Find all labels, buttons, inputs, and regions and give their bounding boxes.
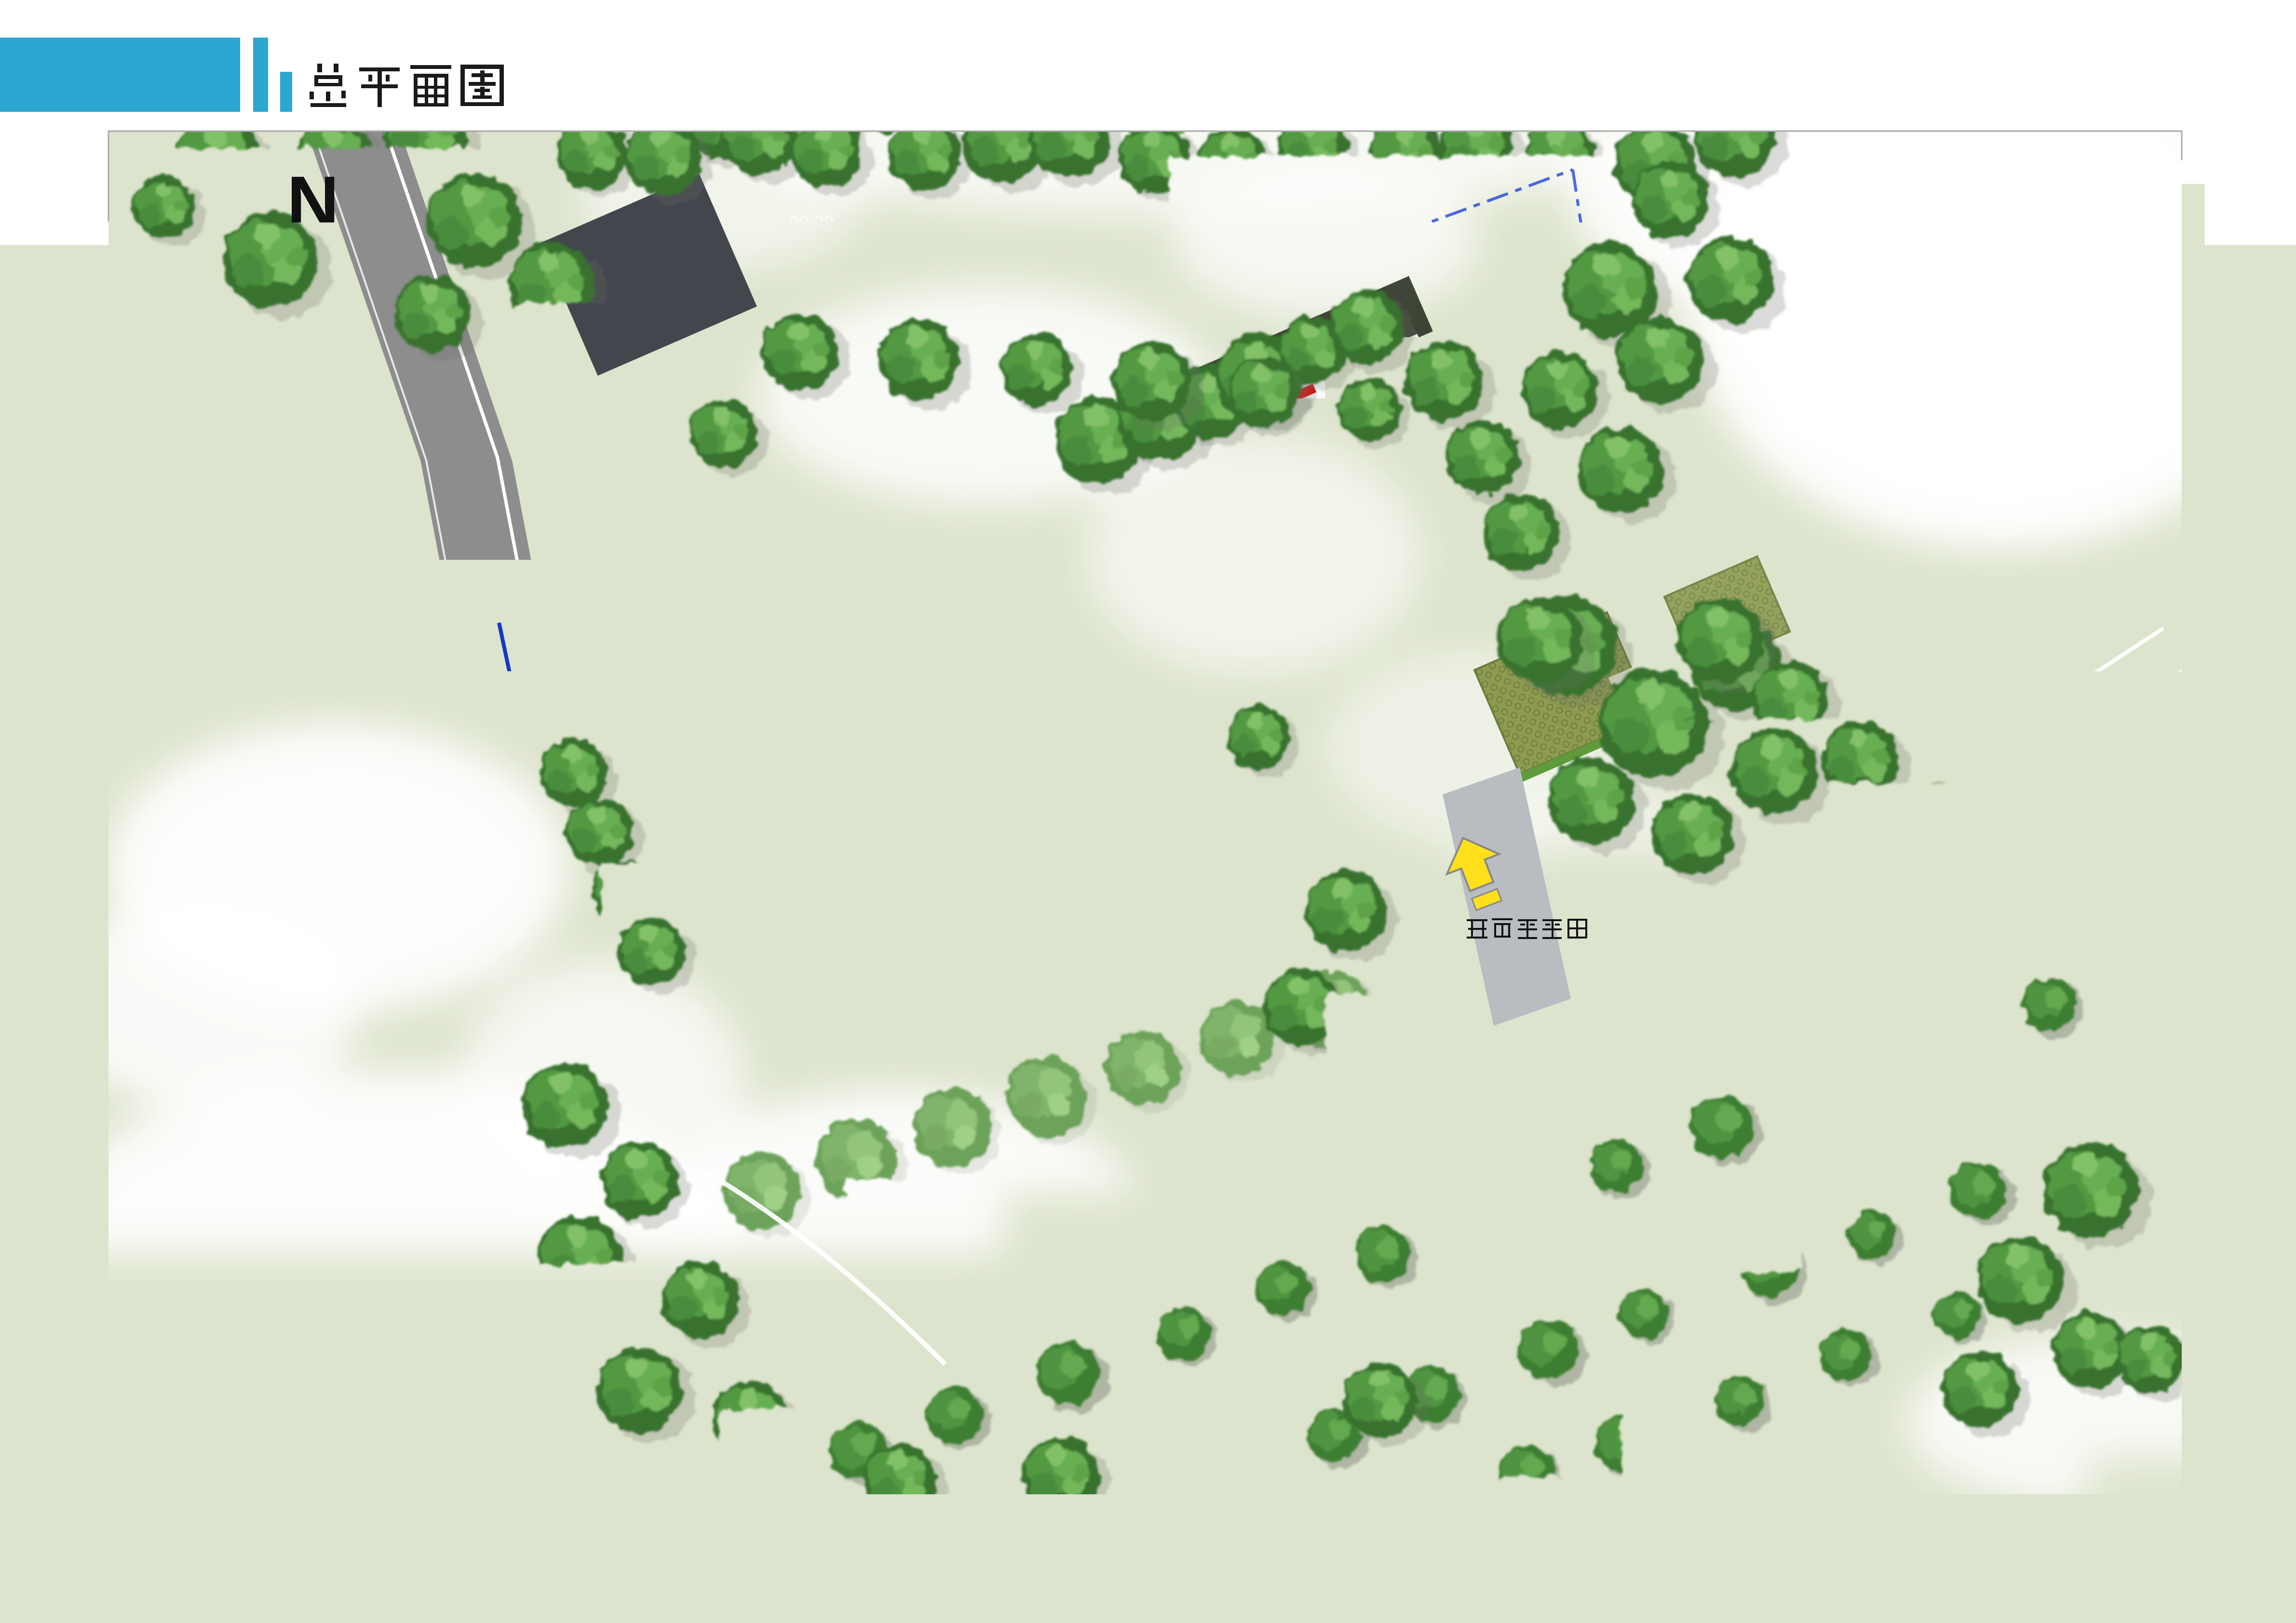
svg-text:744.75: 744.75 [607,1323,672,1347]
svg-text:%: % [356,1411,375,1435]
svg-text:88.50: 88.50 [1184,284,1229,304]
svg-text:≥120: ≥120 [459,1207,506,1230]
svg-text:· 88.33: · 88.33 [777,213,834,233]
svg-text:20M: 20M [415,637,492,681]
svg-text:89.16: 89.16 [403,431,449,452]
svg-text:/: / [480,1382,486,1406]
svg-text:m²: m² [353,1294,378,1318]
svg-text:/: / [480,1353,486,1376]
svg-text:90.19: 90.19 [1157,1296,1203,1316]
svg-text:JIANDESHI DATONGZHEN HUANGSHAN: JIANDESHI DATONGZHEN HUANGSHANTOUCUN WEN… [111,1571,1565,1591]
svg-text:m²: m² [353,1323,378,1347]
svg-text:· 88.27: · 88.27 [918,240,975,260]
svg-text:60~120: 60~120 [447,1294,518,1318]
svg-text:· 88.29: · 88.29 [1316,804,1373,824]
svg-text:75: 75 [628,1411,651,1435]
svg-text:· 88.40: · 88.40 [1760,842,1817,862]
svg-text:8: 8 [634,1470,645,1493]
svg-text:m²: m² [353,1148,378,1171]
svg-text:%: % [356,1382,375,1406]
svg-text:89.76: 89.76 [537,944,582,965]
svg-text:m²: m² [353,1235,378,1259]
svg-text:· 88.70: · 88.70 [1381,1012,1438,1033]
svg-text:m²: m² [353,1177,378,1201]
svg-text:H=12.6: H=12.6 [1250,489,1322,514]
svg-text:89.19: 89.19 [421,461,467,482]
svg-text:1.01: 1.01 [619,1353,660,1376]
svg-text:/: / [480,1440,486,1464]
svg-text:TJ01: TJ01 [2001,890,2041,911]
svg-text:· 88.64: · 88.64 [890,1008,946,1029]
svg-text:≥50: ≥50 [465,1235,500,1259]
svg-text:/: / [480,1148,486,1171]
svg-text:12.8: 12.8 [619,1440,660,1464]
svg-text:89.47: 89.47 [468,617,513,637]
svg-text:· 88.36: · 88.36 [1912,713,1969,733]
svg-text:5: 5 [217,637,239,681]
svg-text:8: 8 [2011,1576,2024,1602]
svg-text:· 89.22: · 89.22 [979,1249,1036,1270]
svg-text:m²: m² [353,1207,378,1230]
svg-text:≥75: ≥75 [465,1265,500,1288]
svg-text:m: m [357,1440,375,1464]
svg-text:≥500, <1000: ≥500, <1000 [423,1177,542,1201]
svg-text:N: N [287,161,339,242]
svg-text:90.37: 90.37 [817,1449,863,1470]
svg-text:15.3: 15.3 [619,1382,660,1406]
svg-text:· 88.24: · 88.24 [1350,334,1407,354]
svg-text:90.23: 90.23 [1526,1276,1572,1296]
svg-text:89.85: 89.85 [2073,948,2119,968]
svg-text:· 91.07: · 91.07 [251,669,308,689]
svg-text:· 88.27: · 88.27 [1374,681,1431,701]
svg-text:/: / [363,1353,369,1376]
svg-text:· 88.47: · 88.47 [1982,790,2039,810]
svg-text:3F: 3F [1250,464,1276,489]
svg-text:997.44: 997.44 [607,1177,672,1201]
svg-text:77: 77 [628,1265,651,1288]
svg-text:100: 100 [621,1294,657,1318]
svg-text:/: / [480,1323,486,1347]
svg-text:m²: m² [353,1265,378,1288]
svg-text:H=8.63: H=8.63 [626,765,698,791]
svg-text:/: / [480,1411,486,1435]
svg-text:0: 0 [145,637,167,681]
svg-text:82: 82 [628,1235,651,1259]
svg-text:430: 430 [621,1207,657,1230]
svg-text:89.74: 89.74 [1998,923,2043,943]
svg-text:0.8/100m²: 0.8/100m² [435,1470,530,1493]
svg-text:985: 985 [621,1148,657,1171]
svg-text:· 88.98: · 88.98 [733,1088,790,1108]
svg-text:1F: 1F [626,740,652,765]
